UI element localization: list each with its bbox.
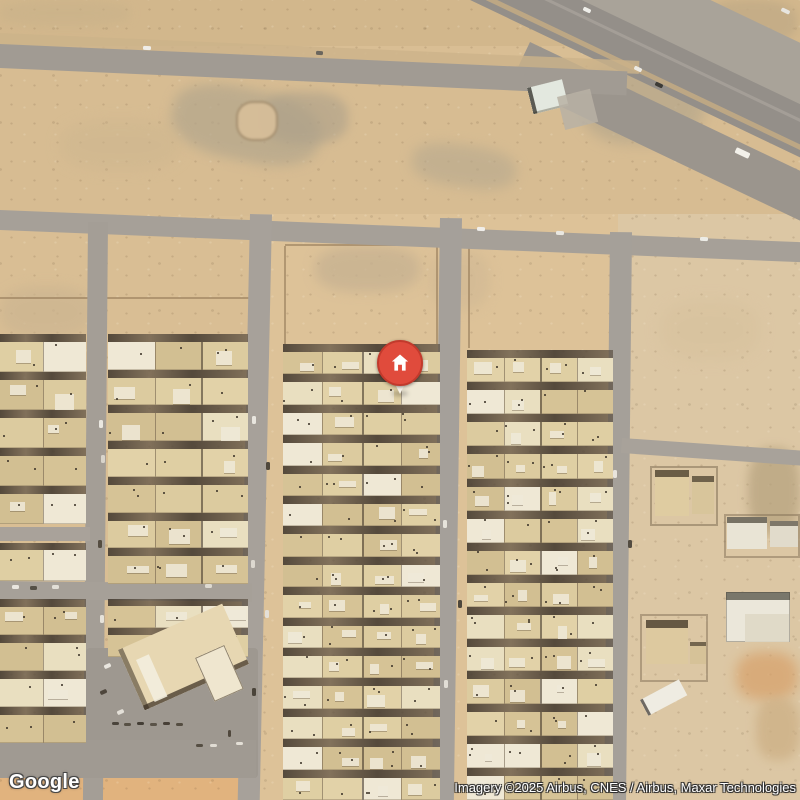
roof-vent: [140, 353, 142, 355]
roof-structure: [224, 610, 246, 620]
vehicle: [583, 6, 592, 13]
roof-vent: [373, 688, 375, 690]
roof-structure: [587, 753, 601, 766]
ground-patch: [262, 92, 348, 144]
roof-vent: [341, 400, 343, 402]
house-row: [0, 607, 86, 635]
roof-structure: [216, 565, 237, 573]
roof-vent: [495, 720, 497, 722]
map-screenshot: Google Imagery ©2025 Airbus, CNES / Airb…: [0, 0, 800, 800]
roof-structure: [221, 427, 240, 441]
road-mid: [0, 210, 800, 263]
roof-vent: [585, 715, 587, 717]
alley-shadow: [0, 635, 86, 643]
compound-northeast: [655, 470, 689, 516]
vehicle: [734, 147, 750, 159]
roof-structure: [588, 659, 605, 667]
vehicle: [30, 586, 37, 590]
roof-vent: [486, 569, 488, 571]
alley-shadow: [467, 350, 613, 358]
roof-vent: [546, 368, 548, 370]
roof-vent: [134, 567, 136, 569]
vehicle: [143, 46, 151, 50]
roof-vent: [297, 419, 299, 421]
house: [201, 556, 248, 584]
roof-structure: [293, 691, 310, 698]
house: [504, 390, 541, 414]
house: [0, 550, 43, 581]
house: [283, 443, 322, 465]
house: [540, 551, 577, 575]
roof-structure: [296, 781, 310, 791]
roof-vent: [589, 652, 591, 654]
roof-vent: [55, 344, 57, 346]
house: [362, 595, 401, 617]
roof-vent: [221, 392, 223, 394]
roof-vent: [54, 617, 56, 619]
roof-vent: [411, 733, 413, 735]
roof-vent: [597, 436, 599, 438]
satellite-map-canvas[interactable]: Google Imagery ©2025 Airbus, CNES / Airb…: [0, 0, 800, 800]
house: [401, 413, 440, 435]
sand-texture: [0, 0, 800, 800]
roof-vent: [505, 425, 507, 427]
roof-structure: [367, 695, 384, 706]
roof-vent: [394, 478, 396, 480]
warehouse-north: [527, 79, 568, 114]
house: [283, 565, 322, 587]
house: [155, 556, 202, 584]
alley-shadow: [0, 543, 86, 550]
house: [467, 422, 504, 446]
highway-shoulder: [511, 42, 800, 242]
roof-vent: [180, 347, 182, 349]
ground-patch: [430, 250, 490, 310]
roof-vent: [300, 536, 302, 538]
alley-shadow: [467, 575, 613, 583]
roof-vent: [61, 684, 63, 686]
roof-structure: [122, 425, 139, 440]
roof-vent: [241, 495, 243, 497]
alley-shadow: [283, 526, 440, 534]
ground-patch: [756, 698, 800, 760]
highway-service-lane: [351, 0, 800, 226]
house: [43, 607, 86, 635]
alley-shadow: [0, 410, 86, 418]
roof-vent: [157, 566, 159, 568]
roof-vent: [474, 622, 476, 624]
roof-vent: [584, 390, 586, 392]
roof-vent: [471, 748, 473, 750]
roof-vent: [182, 622, 184, 624]
desert-zone: [618, 214, 800, 800]
roof-structure: [370, 724, 387, 731]
alley-shadow: [108, 370, 248, 378]
roof-structure: [377, 632, 391, 640]
alley-shadow: [283, 466, 440, 474]
vehicle: [176, 723, 183, 726]
roof-structure: [329, 662, 339, 671]
roof-vent: [304, 704, 306, 706]
roof-vent: [29, 686, 31, 688]
house-row: [467, 358, 613, 382]
vehicle: [52, 585, 59, 589]
house: [201, 485, 248, 513]
house: [322, 686, 361, 708]
street-h1: [0, 581, 252, 602]
roof-vent: [391, 765, 393, 767]
roof-vent: [10, 559, 12, 561]
roof-structure: [594, 461, 603, 472]
house: [401, 474, 440, 496]
house: [108, 342, 155, 370]
vehicle: [477, 227, 485, 231]
roof-vent: [391, 543, 393, 545]
house-row: [283, 595, 440, 617]
roof-vent: [416, 552, 418, 554]
house: [540, 744, 577, 768]
house-row: [108, 378, 248, 406]
roof-vent: [299, 792, 301, 794]
roof-structure: [419, 449, 428, 458]
house: [540, 679, 577, 703]
house: [283, 717, 322, 739]
alley-shadow: [283, 618, 440, 626]
roof-vent: [477, 551, 479, 553]
alley-shadow: [283, 496, 440, 504]
roof-vent: [469, 655, 471, 657]
house: [504, 744, 541, 768]
roof-vent: [559, 602, 561, 604]
roof-vent: [469, 754, 471, 756]
vehicle: [443, 520, 447, 528]
roof-vent: [555, 720, 557, 722]
house-row: [467, 551, 613, 575]
house-row: [108, 485, 248, 513]
desert-zone: [0, 68, 800, 216]
house: [467, 551, 504, 575]
roof-structure: [380, 604, 389, 614]
roof-vent: [496, 455, 498, 457]
roof-structure: [416, 662, 433, 668]
house: [283, 413, 322, 435]
roof-vent: [334, 366, 336, 368]
vehicle: [265, 610, 269, 618]
roof-structure: [339, 481, 355, 487]
roof-vent: [531, 657, 533, 659]
house: [322, 656, 361, 678]
housing-block-a2: [108, 334, 248, 584]
house: [362, 534, 401, 556]
house: [467, 487, 504, 511]
house: [577, 615, 614, 639]
roof-structure: [409, 509, 427, 515]
roof-vent: [476, 694, 478, 696]
roof-vent: [556, 569, 558, 571]
house-row: [283, 717, 440, 739]
house: [322, 626, 361, 648]
roof-structure: [48, 425, 59, 433]
house: [43, 643, 86, 671]
roof-vent: [605, 491, 607, 493]
alley-shadow: [0, 486, 86, 494]
roof-vent: [76, 647, 78, 649]
roof-vent: [283, 400, 285, 402]
compound-south: [690, 642, 706, 664]
house-row: [108, 635, 248, 657]
roof-structure: [48, 690, 68, 699]
roof-vent: [176, 617, 178, 619]
roof-vent: [593, 555, 595, 557]
roof-vent: [3, 435, 5, 437]
house-row: [283, 747, 440, 769]
roof-vent: [510, 685, 512, 687]
marker-circle: [377, 340, 423, 386]
roof-structure: [553, 594, 569, 605]
roof-vent: [222, 565, 224, 567]
housing-block-east: [467, 350, 613, 800]
house: [108, 606, 155, 628]
roof-vent: [514, 690, 516, 692]
house: [504, 422, 541, 446]
roof-structure: [474, 362, 492, 374]
ground-patch: [748, 448, 800, 534]
house-row: [283, 565, 440, 587]
roof-structure: [512, 495, 523, 505]
house-row: [108, 521, 248, 549]
roof-structure: [114, 387, 136, 399]
roof-vent: [289, 514, 291, 516]
alley-shadow: [467, 671, 613, 679]
roof-vent: [73, 721, 75, 723]
roof-vent: [565, 364, 567, 366]
roof-vent: [28, 557, 30, 559]
housing-block-a2-south: [108, 599, 248, 657]
roof-vent: [284, 696, 286, 698]
vehicle: [252, 688, 256, 696]
roof-structure: [558, 626, 568, 639]
roof-structure: [550, 431, 565, 438]
alley-shadow: [108, 548, 248, 556]
vehicle: [556, 231, 564, 235]
vehicle: [781, 7, 791, 14]
desert-zone: [0, 0, 800, 46]
house: [43, 550, 86, 581]
home-icon: [387, 350, 413, 376]
alley-shadow: [108, 628, 248, 635]
house: [322, 778, 361, 800]
house-row: [467, 744, 613, 768]
vehicle: [101, 455, 105, 463]
alley-shadow: [283, 709, 440, 717]
house: [155, 342, 202, 370]
alley-shadow: [0, 671, 86, 679]
housing-block-a1-south: [0, 599, 86, 743]
roof-vent: [507, 461, 509, 463]
house-row: [108, 449, 248, 477]
roof-structure: [518, 590, 527, 601]
house: [0, 418, 43, 448]
alley-shadow: [467, 511, 613, 519]
roof-vent: [331, 626, 333, 628]
alley-shadow: [467, 414, 613, 422]
house: [577, 551, 614, 575]
vehicle: [124, 723, 131, 726]
roof-vent: [7, 460, 9, 462]
map-attribution: Imagery ©2025 Airbus, CNES / Airbus, Max…: [454, 780, 796, 795]
roof-structure: [128, 525, 148, 536]
alley-shadow: [467, 479, 613, 487]
vehicle: [252, 416, 256, 424]
house: [577, 487, 614, 511]
vehicle: [116, 709, 124, 716]
roof-vent: [484, 586, 486, 588]
house: [43, 418, 86, 448]
roof-vent: [402, 413, 404, 415]
roof-vent: [428, 688, 430, 690]
house: [322, 413, 361, 435]
house: [283, 747, 322, 769]
house-row: [0, 715, 86, 743]
house: [155, 413, 202, 441]
vehicle: [150, 723, 157, 726]
roof-structure: [342, 728, 355, 736]
roof-structure: [474, 595, 487, 602]
highway-main: [330, 0, 800, 269]
roof-vent: [412, 629, 414, 631]
house: [540, 358, 577, 382]
alley-shadow: [467, 704, 613, 712]
house: [401, 778, 440, 800]
house: [467, 744, 504, 768]
house-row: [467, 647, 613, 671]
house: [0, 607, 43, 635]
vehicle: [210, 744, 217, 747]
roof-structure: [517, 720, 525, 728]
roof-vent: [473, 491, 475, 493]
roof-vent: [605, 456, 607, 458]
roof-vent: [225, 349, 227, 351]
house: [201, 606, 248, 628]
house: [283, 686, 322, 708]
house: [504, 358, 541, 382]
house-row: [467, 454, 613, 478]
desert-zone: [252, 214, 618, 800]
house-row: [283, 626, 440, 648]
roof-vent: [25, 647, 27, 649]
road-north: [0, 44, 627, 95]
house: [362, 717, 401, 739]
roof-structure: [173, 389, 190, 404]
house: [540, 422, 577, 446]
house: [201, 342, 248, 370]
house: [283, 352, 322, 374]
warehouse-north: [557, 89, 598, 130]
shed-south: [640, 679, 687, 716]
house: [362, 626, 401, 648]
house: [504, 647, 541, 671]
roof-vent: [340, 538, 342, 540]
roof-vent: [420, 765, 422, 767]
house: [540, 712, 577, 736]
roof-vent: [469, 403, 471, 405]
roof-vent: [299, 486, 301, 488]
house: [283, 656, 322, 678]
house: [577, 454, 614, 478]
alley-shadow: [467, 768, 613, 776]
vehicle: [12, 585, 19, 589]
roof-structure: [590, 493, 602, 502]
house: [362, 686, 401, 708]
roof-structure: [379, 507, 395, 519]
roof-structure: [481, 658, 494, 669]
house: [283, 382, 322, 404]
roof-structure: [380, 540, 398, 549]
house: [155, 635, 202, 657]
roof-structure: [511, 433, 521, 444]
vehicle: [458, 600, 462, 608]
compound-southeast-white: [745, 614, 789, 642]
house: [108, 521, 155, 549]
house: [322, 382, 361, 404]
roof-structure: [224, 461, 235, 473]
house: [283, 504, 322, 526]
roof-vent: [580, 660, 582, 662]
google-logo[interactable]: Google: [9, 771, 80, 794]
vehicle: [137, 722, 144, 725]
roof-structure: [166, 564, 187, 577]
roof-structure: [342, 630, 355, 637]
roof-vent: [339, 752, 341, 754]
roof-vent: [75, 468, 77, 470]
roof-vent: [329, 643, 331, 645]
vehicle: [100, 615, 104, 623]
house: [577, 422, 614, 446]
event-hall: [118, 604, 249, 711]
roof-vent: [595, 684, 597, 686]
housing-block-a1-mid: [0, 543, 86, 581]
alley-shadow: [108, 441, 248, 449]
roof-vent: [553, 616, 555, 618]
alley-shadow: [283, 557, 440, 565]
alley-shadow: [0, 372, 86, 380]
house: [577, 390, 614, 414]
roof-vent: [421, 486, 423, 488]
house-row: [0, 456, 86, 486]
roof-structure: [482, 530, 490, 539]
roof-vent: [116, 398, 118, 400]
street-v4: [604, 232, 632, 800]
roof-vent: [373, 610, 375, 612]
roof-vent: [346, 659, 348, 661]
house: [0, 643, 43, 671]
roof-structure: [509, 658, 525, 667]
alley-shadow: [283, 435, 440, 443]
house-row: [0, 342, 86, 372]
house: [155, 606, 202, 628]
house-row: [283, 413, 440, 435]
house: [322, 595, 361, 617]
house: [504, 454, 541, 478]
roof-vent: [55, 428, 57, 430]
house: [201, 413, 248, 441]
house: [201, 521, 248, 549]
roof-vent: [404, 419, 406, 421]
roof-vent: [310, 461, 312, 463]
house-row: [108, 413, 248, 441]
house: [322, 534, 361, 556]
house: [43, 679, 86, 707]
